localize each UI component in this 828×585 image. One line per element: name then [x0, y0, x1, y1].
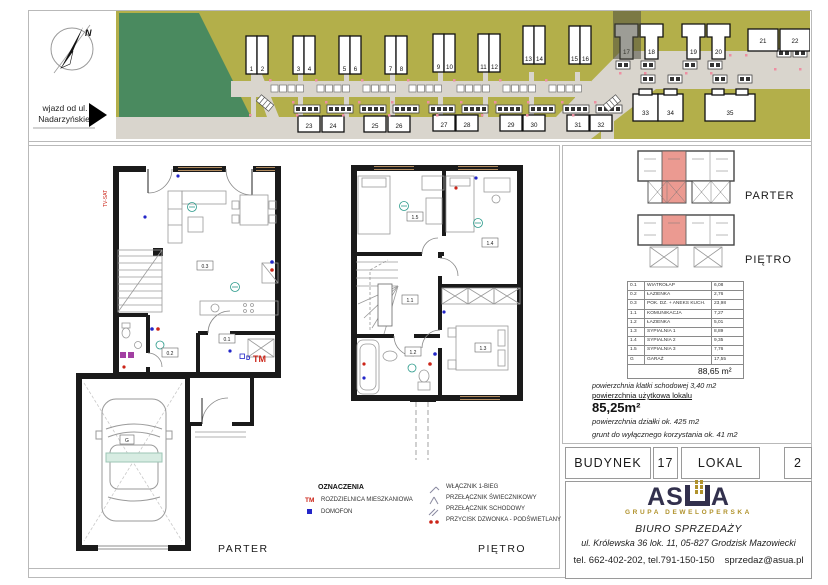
site-building-number: 27 [441, 122, 448, 129]
pietro-floor-plan: 1.5 1.4 1.1 1.2 1.3 [340, 158, 540, 468]
sales-phones: tel. 662-402-202, tel.791-150-150 [574, 555, 715, 566]
domofon-label: D [246, 356, 251, 362]
svg-text:1.5: 1.5 [412, 215, 419, 221]
site-building-number: 31 [575, 122, 582, 129]
offer-sheet: 1234567891011121314151617181920212223242… [0, 0, 828, 585]
legend-item-wlacznik: WŁĄCZNIK 1-BIEG [446, 484, 498, 490]
switch-1-icon [428, 484, 440, 494]
area-table-row: 1.3SYPIALNIA 18,89 [628, 328, 744, 337]
legend-item-domofon: DOMOFON [321, 509, 352, 515]
tm-label: TM [253, 354, 266, 364]
svg-text:0.3: 0.3 [202, 264, 209, 270]
building-number-box: 17 [653, 447, 678, 479]
svg-text:0.1: 0.1 [224, 337, 231, 343]
site-building-number: 19 [690, 49, 697, 56]
site-building-number: 8 [400, 66, 404, 73]
site-building-number: 15 [571, 56, 578, 63]
logo-letter-u-icon [685, 485, 710, 506]
site-building-number: 16 [582, 56, 589, 63]
area-table-row: GGARAŻ17,55 [628, 355, 744, 364]
legend-item-swiecznikowy: PRZEŁĄCZNIK ŚWIECZNIKOWY [446, 495, 537, 501]
site-building-number: 22 [792, 38, 799, 45]
domofon-symbol [307, 509, 312, 514]
site-building-number: 20 [715, 49, 722, 56]
site-building-number: 12 [491, 64, 498, 71]
entrance-label-line1: wjazd od ul. [42, 103, 88, 113]
sales-office-title: BIURO SPRZEDAŻY [635, 523, 742, 535]
area-table-row: 1.4SYPIALNIA 29,35 [628, 337, 744, 346]
legend-item-rozdzielnica: ROZDZIELNICA MIESZKANIOWA [321, 497, 413, 503]
site-building-number: 29 [508, 122, 515, 129]
switch-staircase-icon [428, 506, 440, 516]
note-exclusive-ground: grunt do wyłącznego korzystania ok. 41 m… [592, 430, 738, 439]
svg-text:1.3: 1.3 [480, 346, 487, 352]
logo-text-a: A [711, 487, 730, 507]
parter-floor-plan: TV-SAT D TM 0.3 0.2 0.1 G [50, 155, 320, 565]
unit-label-box: LOKAL [681, 447, 760, 479]
sales-office-address: ul. Królewska 36 lok. 11, 05-827 Grodzis… [581, 538, 795, 548]
note-usable-label: powierzchnia użytkowa lokalu [592, 391, 692, 400]
svg-text:1.2: 1.2 [410, 350, 417, 356]
site-building-number: 14 [536, 56, 543, 63]
north-label: N [85, 28, 92, 38]
svg-text:0.2: 0.2 [167, 351, 174, 357]
site-building-number: 33 [642, 110, 649, 117]
svg-text:1.4: 1.4 [487, 241, 494, 247]
site-building-number: 7 [389, 66, 393, 73]
parter-caption: PARTER [218, 543, 269, 555]
site-building-number: 6 [354, 66, 358, 73]
locator-parter [636, 149, 740, 209]
building-label-box: BUDYNEK [565, 447, 651, 479]
site-building-number: 28 [464, 122, 471, 129]
site-building-number: 4 [308, 66, 312, 73]
logo-text-as: AS [647, 487, 684, 507]
site-building-number: 18 [648, 49, 655, 56]
locator-parter-label: PARTER [745, 190, 795, 202]
locator-pietro [636, 213, 740, 271]
note-plot: powierzchnia działki ok. 425 m2 [592, 417, 699, 426]
site-building-number: 13 [525, 56, 532, 63]
entrance-label-line2: Nadarzyńskiej [38, 114, 91, 124]
site-building-number: 23 [306, 123, 313, 130]
area-table-row: 1.2ŁAZIENKA5,01 [628, 318, 744, 327]
legend-title: OZNACZENIA [318, 484, 364, 491]
site-building-number: 1 [250, 66, 254, 73]
area-table-wrap: 0.1WIATROŁAP6,080.2ŁAZIENKA2,760.3POK. D… [627, 281, 744, 379]
area-table: 0.1WIATROŁAP6,080.2ŁAZIENKA2,760.3POK. D… [627, 281, 744, 379]
area-table-total-row: 88,65 m² [628, 364, 744, 378]
site-building-number: 9 [437, 64, 441, 71]
site-building-number: 25 [372, 123, 379, 130]
tv-sat-label: TV-SAT [103, 190, 109, 207]
area-table-row: 0.1WIATROŁAP6,08 [628, 282, 744, 291]
site-building-number: 11 [480, 64, 487, 71]
legend-item-schodowy: PRZEŁĄCZNIK SCHODOWY [446, 506, 525, 512]
site-building-number: 30 [531, 122, 538, 129]
site-building-number: 2 [261, 66, 265, 73]
tm-symbol: TM [305, 497, 314, 504]
svg-text:G: G [125, 438, 129, 444]
highlighted-building-shadow [613, 11, 641, 59]
site-building-number: 34 [667, 110, 674, 117]
unit-number-box: 2 [784, 447, 812, 479]
usable-area-value: 85,25m² [592, 400, 640, 415]
site-building-number: 21 [760, 38, 767, 45]
area-table-row: 0.2ŁAZIENKA2,76 [628, 291, 744, 300]
site-plan: 1234567891011121314151617181920212223242… [29, 11, 810, 139]
pietro-caption: PIĘTRO [478, 543, 526, 555]
site-building-number: 35 [727, 110, 734, 117]
site-building-number: 32 [598, 122, 605, 129]
parking-squares [271, 85, 582, 92]
area-table-row: 1.1KOMUNIKACJA7,27 [628, 309, 744, 318]
site-building-number: 26 [396, 123, 403, 130]
locator-pietro-label: PIĘTRO [745, 254, 792, 266]
site-building-number: 3 [297, 66, 301, 73]
legend-item-dzwonek: PRZYCISK DZWONKA - PODŚWIETLANY [446, 517, 561, 523]
doorbell-button-icon [428, 517, 440, 527]
asua-logo: AS A [647, 486, 730, 507]
logo-tagline: GRUPA DEWELOPERSKA [625, 509, 752, 516]
site-building-number: 5 [343, 66, 347, 73]
site-building-number: 24 [330, 123, 337, 130]
area-table-row: 1.5SYPIALNIA 37,76 [628, 346, 744, 355]
sales-email: sprzedaz@asua.pl [725, 555, 804, 566]
developer-box: AS A GRUPA DEWELOPERSKA BIURO SPRZEDAŻY … [565, 481, 812, 579]
svg-text:1.1: 1.1 [407, 298, 414, 304]
area-table-row: 0.3POK. DZ. + ANEKS KUCH.23,98 [628, 300, 744, 309]
switch-candelabra-icon [428, 495, 440, 505]
note-stairwell: powierzchnia klatki schodowej 3,40 m2 [592, 381, 716, 390]
site-building-number: 10 [446, 64, 453, 71]
